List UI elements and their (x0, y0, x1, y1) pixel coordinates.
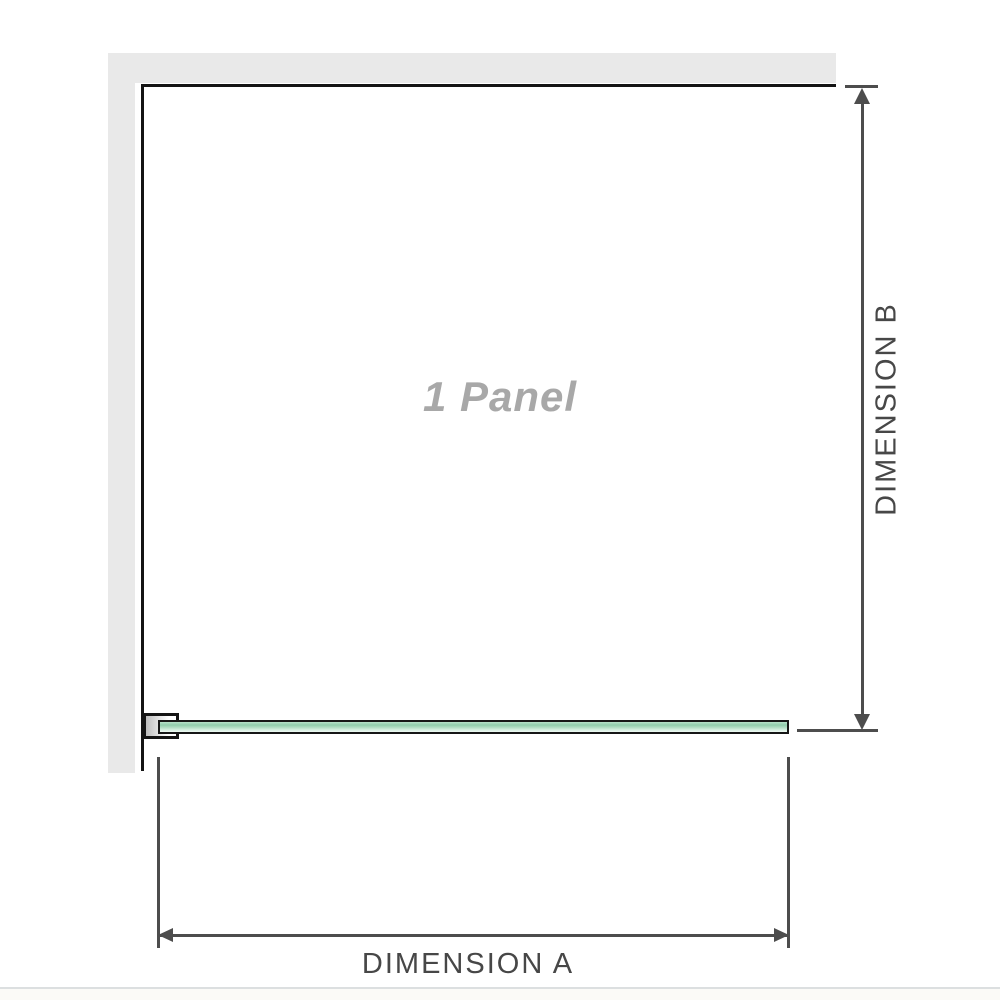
glass-panel (158, 720, 789, 734)
footer-strip (0, 989, 1000, 1000)
dimension-a-right-extension-line (787, 757, 790, 948)
dimension-b-label: DIMENSION B (871, 302, 904, 516)
dimension-a-line (160, 934, 787, 937)
arrow-left-icon (158, 928, 173, 942)
panel-count-label: 1 Panel (423, 373, 577, 421)
panel-outline (141, 84, 836, 771)
arrow-down-icon (854, 714, 870, 730)
arrow-up-icon (854, 88, 870, 104)
wall-top-section (108, 53, 836, 83)
dimension-b-line (861, 92, 864, 726)
diagram-canvas: 1 Panel DIMENSION B DIMENSION A (0, 0, 1000, 1000)
wall-left-section (108, 53, 135, 773)
arrow-right-icon (774, 928, 789, 942)
dimension-a-label: DIMENSION A (362, 948, 574, 981)
dimension-a-left-extension-line (157, 757, 160, 948)
